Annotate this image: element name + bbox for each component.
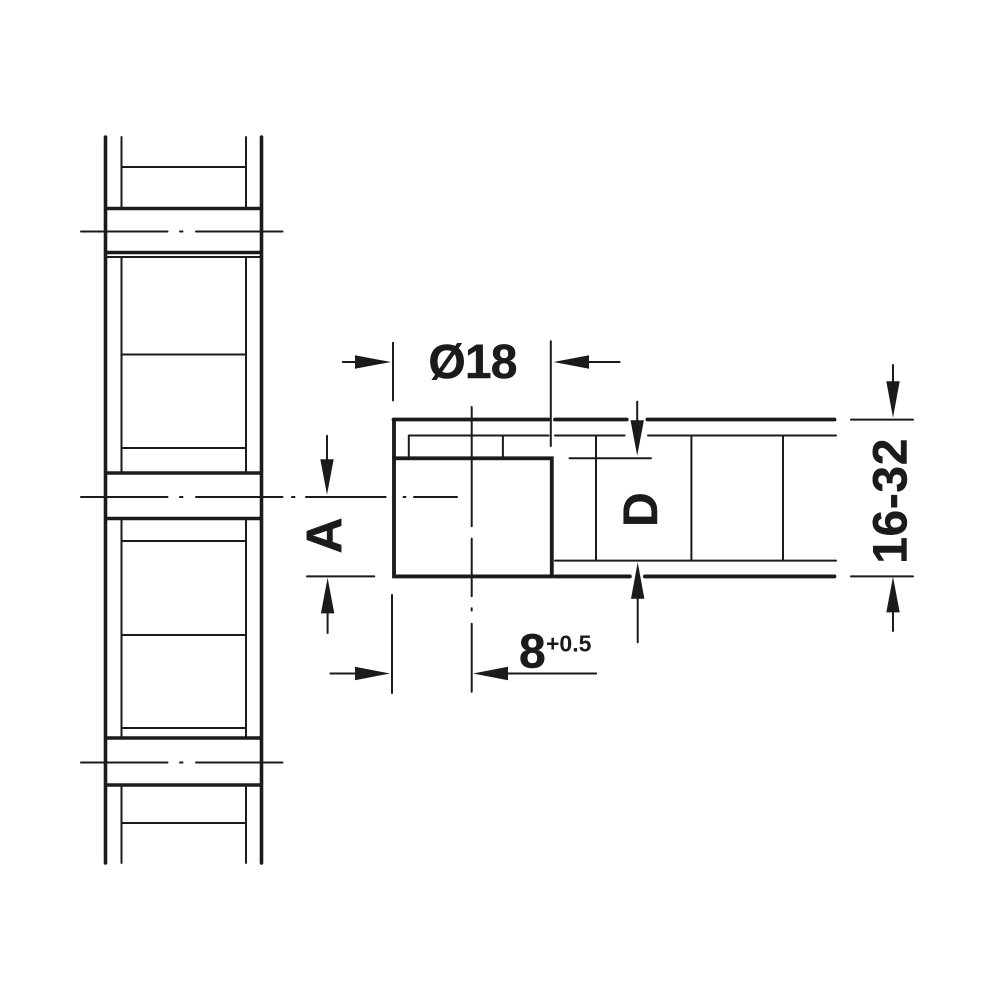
svg-text:Ø18: Ø18 — [428, 336, 516, 389]
svg-text:16-32: 16-32 — [865, 438, 918, 564]
svg-text:+0.5: +0.5 — [546, 631, 592, 657]
svg-text:D: D — [615, 492, 668, 527]
svg-text:8: 8 — [519, 626, 546, 679]
svg-text:A: A — [297, 517, 353, 553]
